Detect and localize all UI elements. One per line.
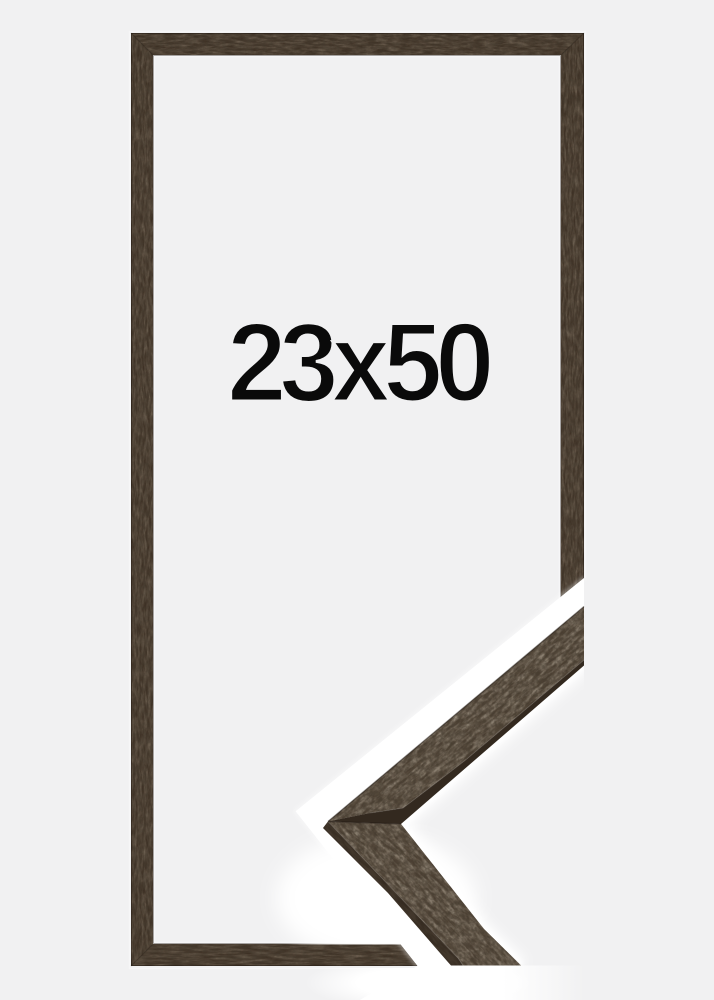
svg-text:23x50: 23x50 <box>227 301 491 426</box>
